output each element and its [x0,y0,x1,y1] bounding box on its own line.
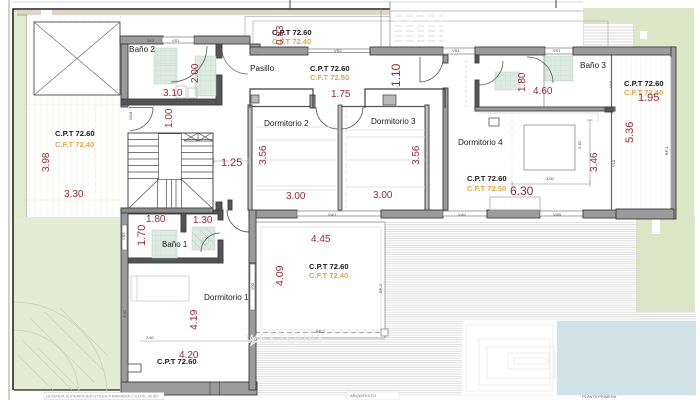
svg-text:C.F.T 72.40: C.F.T 72.40 [309,271,348,280]
svg-text:5.36: 5.36 [624,122,636,143]
svg-text:0.83: 0.83 [275,25,286,45]
svg-text:Dormitorio 4: Dormitorio 4 [458,138,503,147]
svg-text:3.30: 3.30 [64,189,84,200]
svg-text:V02: V02 [250,282,255,290]
svg-text:1.80: 1.80 [517,72,528,92]
svg-text:1.70: 1.70 [136,225,148,246]
svg-text:1.00: 1.00 [164,108,175,128]
svg-text:ARQUITECTO: ARQUITECTO [350,393,376,398]
svg-text:3.56: 3.56 [411,145,422,165]
svg-text:BP-2: BP-2 [378,283,383,293]
svg-text:C.F.T 72.50: C.F.T 72.50 [467,184,506,193]
svg-text:6.30: 6.30 [510,184,534,198]
svg-text:1.95: 1.95 [638,92,659,104]
svg-text:V4/2: V4/2 [458,212,467,217]
svg-text:WESTQUAY: WESTQUAY [246,332,326,346]
svg-text:4.60: 4.60 [533,86,553,97]
svg-text:1.10: 1.10 [389,63,403,87]
svg-text:Dormitorio 1: Dormitorio 1 [204,293,249,302]
svg-text:4.20: 4.20 [179,350,199,361]
svg-text:VS1: VS1 [452,48,460,53]
svg-text:4.45: 4.45 [311,234,331,245]
svg-text:C.P.T 72.60: C.P.T 72.60 [467,174,507,183]
svg-text:C.P.T 72.60: C.P.T 72.60 [624,79,664,88]
svg-text:3.10: 3.10 [163,88,183,99]
svg-text:Baño 3: Baño 3 [580,61,606,70]
svg-text:2.60: 2.60 [146,335,155,340]
svg-text:PLANTA PRIMERA: PLANTA PRIMERA [582,394,617,399]
svg-text:VS1: VS1 [553,48,561,53]
svg-text:LEYENDA SUPERFICIES UTILES P.P: LEYENDA SUPERFICIES UTILES P.PRIMERA 1 S… [46,394,158,399]
svg-text:4.19: 4.19 [188,309,200,330]
svg-text:VS5: VS5 [121,232,126,240]
svg-text:4.09: 4.09 [274,265,286,286]
svg-text:1.30: 1.30 [193,215,213,226]
svg-text:Dormitorio 3: Dormitorio 3 [371,117,416,126]
svg-text:C.P.T 72.60: C.P.T 72.60 [310,64,350,73]
svg-text:VS1: VS1 [172,38,180,43]
svg-text:C.F.T 72.50: C.F.T 72.50 [310,73,349,82]
svg-text:Baño 1: Baño 1 [162,240,188,249]
svg-text:3.98: 3.98 [41,152,52,172]
svg-text:C.F.T 72.40: C.F.T 72.40 [55,140,94,149]
svg-text:VL0: VL0 [608,80,613,88]
svg-text:3.00: 3.00 [373,190,393,201]
svg-text:1.80: 1.80 [146,214,166,225]
svg-text:BP-2: BP-2 [316,329,326,334]
svg-text:1.75: 1.75 [331,89,351,100]
svg-text:3.46: 3.46 [589,152,600,172]
svg-text:V4/0: V4/0 [553,212,562,217]
svg-text:3.00: 3.00 [546,176,555,181]
svg-text:2.40: 2.40 [577,140,582,149]
svg-text:VL0: VL0 [611,159,616,167]
svg-text:2.00: 2.00 [190,63,201,83]
svg-text:C.P.T 72.60: C.P.T 72.60 [309,262,349,271]
svg-text:C.P.T 72.60: C.P.T 72.60 [55,129,95,138]
svg-text:VS2: VS2 [334,48,342,53]
svg-text:Dormitorio 2: Dormitorio 2 [264,119,309,128]
svg-text:3.56: 3.56 [258,145,269,165]
svg-text:Baño 2: Baño 2 [129,45,155,54]
svg-text:W18: W18 [128,111,133,120]
svg-text:3.00: 3.00 [122,309,127,318]
svg-text:3.00: 3.00 [286,191,306,202]
svg-text:3K3: 3K3 [147,38,155,43]
svg-text:1.25: 1.25 [221,157,242,169]
svg-text:V4/1: V4/1 [328,212,337,217]
svg-text:Pasillo: Pasillo [250,64,275,73]
svg-text:BP-1: BP-1 [664,145,669,155]
